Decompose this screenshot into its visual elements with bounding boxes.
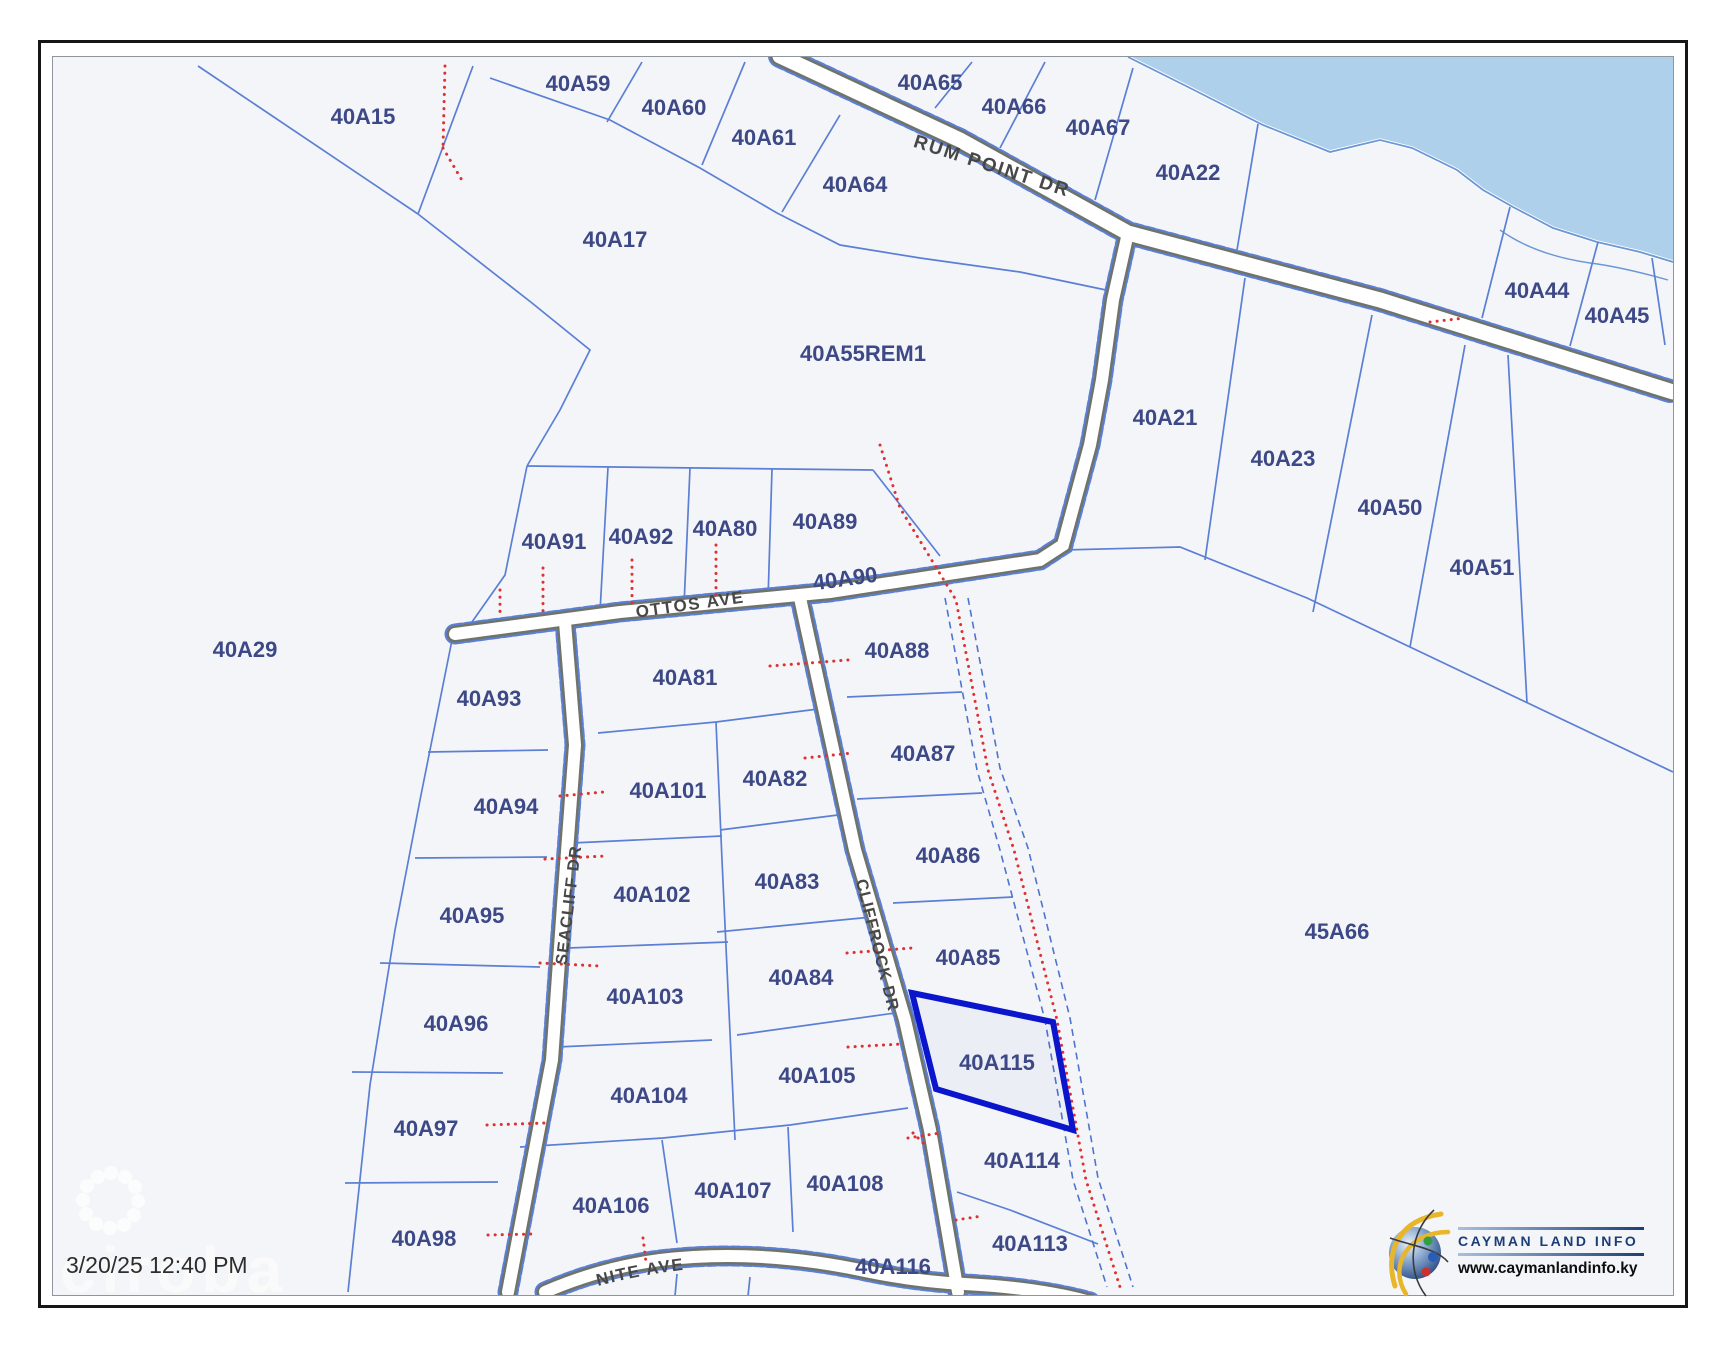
parcel-label-40A116: 40A116 (855, 1254, 931, 1279)
parcel-label-40A45: 40A45 (1585, 303, 1650, 328)
parcel-label-40A104: 40A104 (610, 1083, 688, 1108)
parcel-label-40A66: 40A66 (982, 94, 1047, 119)
logo-url[interactable]: www.caymanlandinfo.ky (1458, 1256, 1644, 1278)
parcel-label-40A92: 40A92 (609, 524, 674, 549)
parcel-label-40A50: 40A50 (1358, 495, 1423, 520)
parcel-label-40A64: 40A64 (823, 172, 889, 197)
parcel-label-40A15: 40A15 (331, 104, 396, 129)
parcel-label-40A82: 40A82 (743, 766, 808, 791)
parcel-label-45A66: 45A66 (1305, 919, 1370, 944)
parcel-label-40A44: 40A44 (1505, 278, 1571, 303)
parcel-label-40A95: 40A95 (440, 903, 505, 928)
parcel-label-40A61: 40A61 (732, 125, 797, 150)
parcel-label-40A107: 40A107 (694, 1178, 771, 1203)
parcel-label-40A85: 40A85 (936, 945, 1001, 970)
map-viewport: ciroba (52, 56, 1674, 1296)
logo-title: CAYMAN LAND INFO (1458, 1230, 1644, 1253)
parcel-label-40A29: 40A29 (213, 637, 278, 662)
parcel-label-40A105: 40A105 (778, 1063, 855, 1088)
road-ottos-ave (455, 233, 1128, 634)
parcel-label-40A101: 40A101 (629, 778, 706, 803)
parcel-label-40A80: 40A80 (693, 516, 758, 541)
parcel-label-40A93: 40A93 (457, 686, 522, 711)
parcel-label-40A51: 40A51 (1450, 555, 1515, 580)
page: { "map": { "timestamp": "3/20/25 12:40 P… (0, 0, 1721, 1350)
parcel-label-40A115: 40A115 (959, 1050, 1035, 1075)
parcel-label-40A91: 40A91 (522, 529, 587, 554)
trail-corridor (945, 598, 1133, 1287)
parcel-label-40A108: 40A108 (806, 1171, 883, 1196)
parcel-label-40A55REM1: 40A55REM1 (800, 341, 926, 366)
parcel-label-40A103: 40A103 (606, 984, 683, 1009)
parcel-label-40A113: 40A113 (992, 1231, 1068, 1256)
parcel-label-40A89: 40A89 (793, 509, 858, 534)
road-label-ottos-ave: OTTOS AVE (635, 587, 746, 621)
parcel-label-40A21: 40A21 (1133, 405, 1198, 430)
parcel-label-40A87: 40A87 (891, 741, 956, 766)
road-label-rum-point-dr: RUM POINT DR (911, 131, 1073, 201)
parcel-label-40A114: 40A114 (984, 1148, 1061, 1173)
parcel-label-40A65: 40A65 (898, 70, 963, 95)
parcel-label-40A102: 40A102 (613, 882, 690, 907)
parcel-label-40A17: 40A17 (583, 227, 648, 252)
parcel-label-40A59: 40A59 (546, 71, 611, 96)
parcel-label-40A94: 40A94 (474, 794, 540, 819)
parcel-label-40A83: 40A83 (755, 869, 820, 894)
parcel-label-40A86: 40A86 (916, 843, 981, 868)
parcel-label-40A22: 40A22 (1156, 160, 1221, 185)
map-canvas[interactable]: ciroba (53, 57, 1673, 1295)
parcel-label-40A88: 40A88 (865, 638, 930, 663)
parcel-label-40A84: 40A84 (769, 965, 835, 990)
parcel-label-40A23: 40A23 (1251, 446, 1316, 471)
cayman-land-info-logo: CAYMAN LAND INFO www.caymanlandinfo.ky (1378, 1200, 1678, 1304)
parcel-label-40A67: 40A67 (1066, 115, 1131, 140)
parcel-label-40A106: 40A106 (572, 1193, 649, 1218)
parcel-label-40A81: 40A81 (653, 665, 718, 690)
parcel-label-40A97: 40A97 (394, 1116, 459, 1141)
globe-icon (1378, 1204, 1452, 1300)
parcel-label-40A60: 40A60 (642, 95, 707, 120)
parcel-label-40A98: 40A98 (392, 1226, 457, 1251)
parcel-label-40A96: 40A96 (424, 1011, 489, 1036)
timestamp: 3/20/25 12:40 PM (66, 1252, 248, 1279)
